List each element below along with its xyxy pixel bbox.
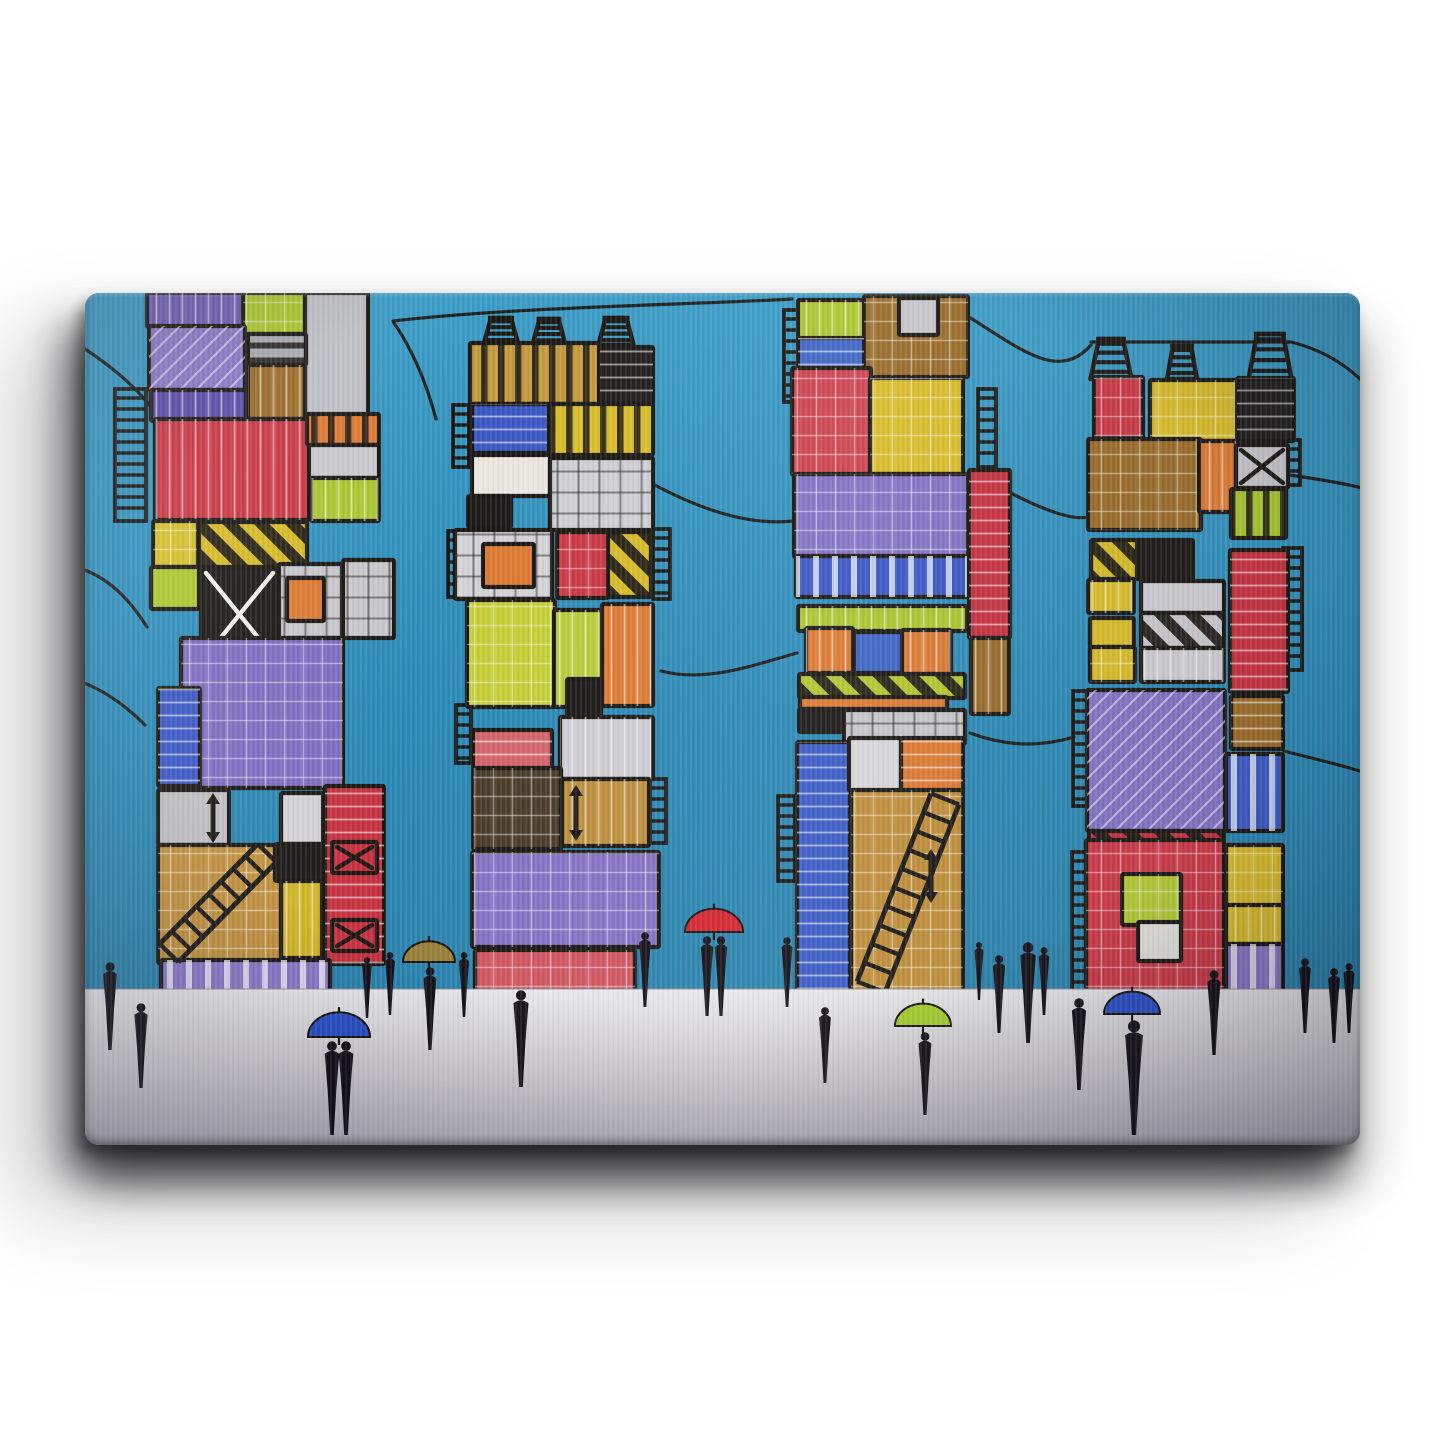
page-background — [0, 0, 1445, 1445]
metal-print-artwork — [85, 293, 1360, 1145]
artwork-svg — [85, 293, 1360, 1145]
